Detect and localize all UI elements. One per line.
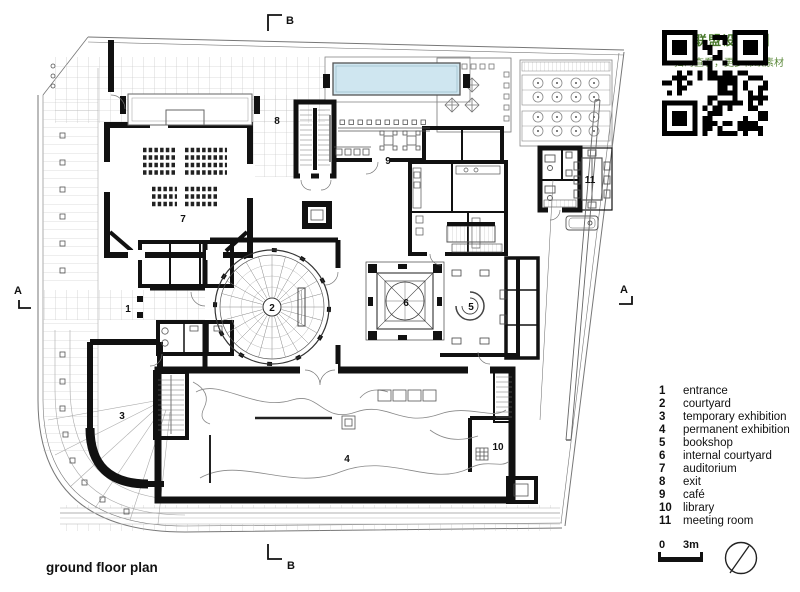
plan-label-meeting-room: 11 [585,175,596,186]
plan-label-entrance: 1 [125,304,131,315]
kitchen-interior [413,166,502,252]
section-letter-a-right: A [620,284,628,296]
page-title: ground floor plan [46,560,158,575]
cafe-interior [334,120,430,155]
section-letter-b-top: B [286,15,294,27]
library-table [476,448,488,460]
pool [333,63,460,95]
scale-bar: 0 3m [658,539,703,562]
legend-item: 10library [659,501,799,514]
exhibition-interior [193,382,508,483]
legend-item: 5bookshop [659,437,799,450]
section-letter-b-bottom: B [287,560,295,572]
vestibule-inner [514,484,528,496]
plan-label-permanent-exhibition: 4 [344,454,350,465]
plan-label-temporary-exhibition: 3 [119,411,125,422]
legend-item: 1entrance [659,385,799,398]
legend-item: 2courtyard [659,398,799,411]
scale-zero-label: 0 [659,539,665,551]
auditorium-interior [128,94,252,204]
section-letter-a-left: A [14,285,22,297]
planter-circles [533,78,599,136]
bookshop [440,258,520,355]
section-marker-bracket-top [268,15,282,31]
section-marker-bracket-left [19,300,31,308]
auditorium-seats [143,150,227,204]
legend-item: 7auditorium [659,463,799,476]
legend-item: 9café [659,489,799,502]
plan-label-bookshop: 5 [468,302,474,313]
section-marker-bracket-bottom [268,544,282,559]
pool-area [323,57,470,102]
west-stair-treads [158,375,184,434]
east-ramp [540,100,600,440]
qr-code [676,77,782,183]
scale-3m-label: 3m [683,539,699,551]
legend-item: 6internal courtyard [659,450,799,463]
room-legend: 1entrance 2courtyard 3temporary exhibiti… [659,385,799,527]
plan-label-exit: 8 [274,116,280,127]
plan-label-cafe: 9 [385,156,391,167]
meeting-room-interior [544,150,610,230]
planter-terrace [520,60,612,146]
legend-item: 8exit [659,476,799,489]
section-marker-bracket-right [619,296,632,304]
cafe-sofas [334,147,371,155]
north-arrow-icon [726,543,757,574]
watermark-block: 【联盟设计库】 扫码查看，更多稀缺素材 [662,30,796,183]
plan-label-internal-courtyard: 6 [403,298,409,309]
plan-label-library: 10 [492,442,504,453]
plan-label-auditorium: 7 [180,214,186,225]
bar-stools [340,120,426,125]
plan-label-courtyard: 2 [269,303,275,314]
legend-item: 4permanent exhibition [659,424,799,437]
legend-item: 11meeting room [659,514,799,527]
elevator [308,207,326,223]
cafe-tables [380,131,420,150]
legend-item: 3temporary exhibition [659,411,799,424]
